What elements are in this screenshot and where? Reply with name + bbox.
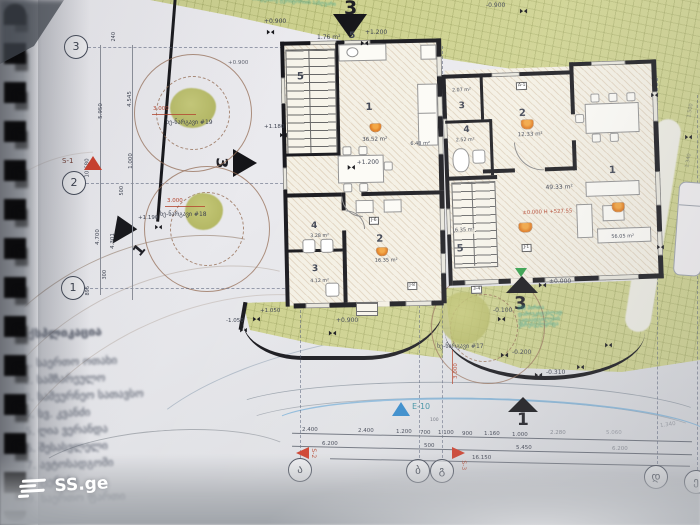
ssge-logo-icon bbox=[17, 478, 48, 502]
tree-18-radius-line bbox=[165, 206, 205, 207]
window bbox=[655, 171, 661, 205]
photo-bottom-sheet-glow bbox=[260, 470, 700, 525]
dim-c3: 5.450 bbox=[516, 445, 532, 451]
dim-b6: 900 bbox=[462, 431, 473, 437]
left-r2-num: 2 bbox=[376, 234, 383, 245]
level-minus-0310: -0.310 bbox=[546, 370, 565, 377]
logo-bar bbox=[21, 489, 45, 493]
level-minus-0200: -0.200 bbox=[512, 350, 531, 357]
chair bbox=[610, 133, 619, 142]
level-top-minus: -0.900 bbox=[486, 3, 505, 10]
window bbox=[465, 279, 499, 285]
right-r2-area: 12.33 m² bbox=[518, 131, 543, 138]
chair bbox=[343, 183, 352, 192]
window bbox=[281, 78, 286, 104]
window bbox=[283, 168, 287, 190]
door-tag: J-6 bbox=[369, 217, 379, 225]
right-r3-area: 2.07 m² bbox=[452, 88, 471, 94]
paper-edge-shadow bbox=[38, 0, 90, 525]
washer bbox=[325, 283, 339, 297]
dim-c2: 500 bbox=[424, 443, 435, 449]
wardrobe bbox=[417, 83, 438, 145]
left-r3-num: 3 bbox=[312, 265, 318, 275]
door-tag: J-1 bbox=[521, 244, 531, 252]
level-mark-icon bbox=[501, 353, 508, 359]
site-plan-photo: 1 3 3 3.000 ხე-ნარგავი #19 3.000 ხე-ნარგ… bbox=[0, 0, 700, 525]
chair bbox=[590, 93, 599, 102]
level-mark-icon bbox=[657, 245, 664, 250]
window bbox=[446, 209, 451, 235]
dim-b2: 2.400 bbox=[358, 428, 374, 434]
right-r2-num: 2 bbox=[519, 108, 526, 119]
level-mark-icon bbox=[155, 225, 162, 230]
dim-line-vert bbox=[132, 45, 133, 300]
level-e2: +1.190 bbox=[138, 215, 158, 221]
door-tag: J-8 bbox=[407, 282, 417, 290]
level-mark-icon bbox=[605, 343, 612, 348]
logo-bar bbox=[22, 479, 46, 483]
right-r4-num: 4 bbox=[463, 126, 470, 136]
right-r3-num: 3 bbox=[458, 102, 465, 112]
section-arrow-3-top-label: 3 bbox=[344, 0, 357, 19]
chair bbox=[626, 92, 635, 101]
level-mark-icon bbox=[348, 165, 355, 171]
chair bbox=[358, 146, 367, 155]
dim-left-240: 240 bbox=[112, 32, 118, 42]
left-stairs bbox=[285, 49, 337, 156]
window bbox=[406, 301, 432, 307]
toilet bbox=[302, 239, 315, 253]
dim-100: 100 bbox=[430, 419, 439, 424]
tree-17-label: ხე-ნარგავი #17 bbox=[437, 344, 484, 351]
left-building: 5 6.48 m² 1 36.52 m² +1.200 2 16.35 m² 4… bbox=[280, 38, 449, 313]
window bbox=[441, 253, 446, 273]
grid-col-e-line bbox=[697, 95, 698, 470]
door-tag: A-1 bbox=[516, 82, 528, 90]
dim-b3: 1.200 bbox=[396, 429, 412, 435]
left-r5-area: 6.48 m² bbox=[410, 142, 430, 148]
dim-b5: 1.100 bbox=[438, 430, 454, 436]
left-r4-num: 4 bbox=[311, 222, 317, 232]
right-r1-area: 49.33 m² bbox=[545, 184, 573, 192]
chair bbox=[359, 183, 368, 192]
access-note: შშმ პირთა დამოუკიდებლად გადაადგილების უზ… bbox=[518, 305, 564, 330]
dim-left-4301: 4.301 bbox=[110, 233, 116, 249]
side-table bbox=[383, 199, 401, 212]
veranda-area: 1.76 m² bbox=[317, 35, 341, 42]
grid-row-3-line bbox=[88, 47, 288, 48]
e10-triangle bbox=[392, 402, 410, 416]
chair bbox=[575, 114, 584, 123]
dim-left-4545: 4.545 bbox=[127, 91, 133, 107]
left-r1-area: 36.52 m² bbox=[362, 137, 387, 144]
level-mark-icon bbox=[253, 317, 260, 322]
level-minus-0100: -0.100 bbox=[493, 308, 512, 315]
right-building: 2.07 m² 3 4 2.52 m² 2 12.33 m² A-1 1 49.… bbox=[441, 51, 667, 293]
door-tag: 3-4 bbox=[471, 286, 483, 294]
dim-b10: 5.060 bbox=[606, 430, 622, 436]
left-r2-area: 16.35 m² bbox=[375, 258, 398, 264]
level-mark-icon bbox=[267, 30, 274, 36]
dim-left-300: 300 bbox=[103, 270, 109, 280]
level-zero: ±0.000 bbox=[549, 279, 571, 286]
e10-label: E-10 bbox=[412, 403, 430, 412]
logo-bar bbox=[18, 494, 29, 497]
level-mark-icon bbox=[577, 365, 584, 370]
tree-17-radius: 3.000 bbox=[453, 363, 459, 379]
chair bbox=[384, 161, 393, 170]
bathtub bbox=[452, 148, 470, 173]
level-mark-icon bbox=[361, 41, 368, 47]
right-r4-area: 2.52 m² bbox=[456, 138, 475, 144]
left-r5-num: 5 bbox=[297, 71, 304, 82]
chair bbox=[592, 133, 601, 142]
grid-row-2-line bbox=[86, 183, 288, 184]
dining-table bbox=[585, 102, 640, 134]
window bbox=[599, 274, 639, 280]
tree-18-radius: 3.000 bbox=[167, 198, 183, 204]
right-r5-area: 6.35 m² bbox=[455, 228, 475, 234]
right-r1-area2: 56.05 m² bbox=[611, 234, 634, 240]
level-e1: +1.180 bbox=[264, 124, 284, 130]
level-mark-icon bbox=[240, 328, 247, 333]
level-mark-icon bbox=[280, 133, 287, 138]
right-r5-num: 5 bbox=[456, 243, 463, 254]
left-r4-area: 3.28 m² bbox=[310, 234, 329, 240]
window bbox=[438, 136, 443, 154]
dim-left-1000: 1.000 bbox=[128, 153, 134, 169]
chair bbox=[608, 93, 617, 102]
tree-18-label: ხე-ნარგავი #18 bbox=[160, 212, 207, 219]
level-mark-icon bbox=[685, 135, 692, 140]
tree-19-radius-line bbox=[152, 114, 196, 115]
left-r1-num: 1 bbox=[365, 102, 372, 113]
level-path-plus: +1.050 bbox=[260, 308, 280, 314]
veranda-num: 5 bbox=[349, 32, 355, 42]
level-terrace: +0.900 bbox=[336, 318, 358, 325]
dim-b8: 1.000 bbox=[512, 432, 528, 438]
sofa bbox=[585, 180, 639, 197]
window bbox=[440, 208, 445, 230]
level-top-plus2: +0.900 bbox=[228, 60, 248, 66]
dim-left-500: 500 bbox=[120, 186, 126, 196]
toilet bbox=[472, 149, 485, 163]
dim-left-4700: 4.700 bbox=[95, 229, 101, 245]
dim-c4: 6.200 bbox=[612, 446, 628, 452]
tree-19-label: ხე-ნარგავი #19 bbox=[166, 120, 213, 127]
ssge-logo-text: SS.ge bbox=[54, 474, 109, 495]
veranda-level: +1.200 bbox=[365, 30, 387, 37]
tree-19-radius: 3.000 bbox=[153, 106, 169, 112]
dim-b1: 2.400 bbox=[302, 427, 318, 433]
dim-b9: 2.280 bbox=[550, 430, 566, 436]
dim-line-vert bbox=[100, 45, 101, 295]
level-mark-icon bbox=[498, 317, 505, 323]
dim-c1: 6.200 bbox=[322, 441, 338, 447]
grid-row-1-line bbox=[85, 288, 300, 289]
armchair bbox=[576, 204, 593, 239]
left-r1-level: +1.200 bbox=[357, 160, 379, 167]
section-arrow-3-bottom bbox=[506, 276, 538, 293]
window bbox=[306, 303, 330, 309]
window bbox=[657, 231, 663, 255]
dim-b7: 1.160 bbox=[484, 431, 500, 437]
fridge bbox=[420, 44, 436, 59]
spiral-binding-rings bbox=[15, 14, 28, 519]
level-mark-icon bbox=[535, 373, 542, 379]
section-arrow-1-bottom-label: 1 bbox=[517, 411, 529, 430]
level-mark-icon bbox=[651, 93, 658, 98]
level-mark-icon bbox=[520, 9, 527, 15]
level-mark-icon bbox=[329, 331, 336, 337]
right-r1-num: 1 bbox=[609, 165, 616, 176]
chair bbox=[342, 146, 351, 155]
left-r3-area: 4.12 m² bbox=[310, 279, 329, 285]
level-mark-icon bbox=[539, 283, 546, 289]
stove-icon bbox=[519, 223, 532, 232]
sink bbox=[320, 239, 333, 253]
terrace-steps bbox=[356, 302, 378, 316]
dim-left-5950: 5.950 bbox=[98, 103, 104, 119]
dim-b4: 700 bbox=[420, 430, 431, 436]
side-table bbox=[356, 200, 374, 213]
level-path-minus: -1.050 bbox=[226, 318, 244, 324]
level-top-plus: +0.900 bbox=[264, 19, 286, 26]
logo-bar bbox=[19, 484, 36, 488]
